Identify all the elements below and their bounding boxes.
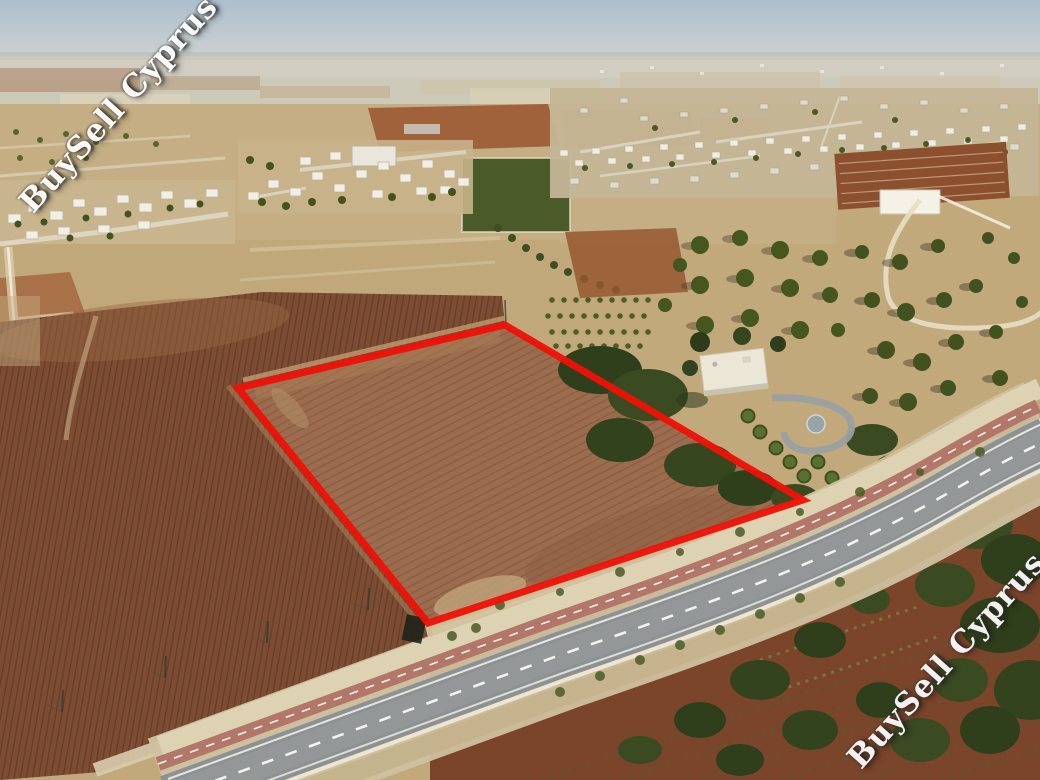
- left-village: [0, 180, 235, 244]
- olive-orchard: [545, 228, 845, 349]
- aerial-photo-canvas: [0, 0, 1040, 780]
- garden-pond: [807, 415, 825, 433]
- sky: [0, 0, 1040, 64]
- aerial-photo: BuySell Cyprus BuySell Cyprus: [0, 0, 1040, 780]
- house: [700, 348, 768, 396]
